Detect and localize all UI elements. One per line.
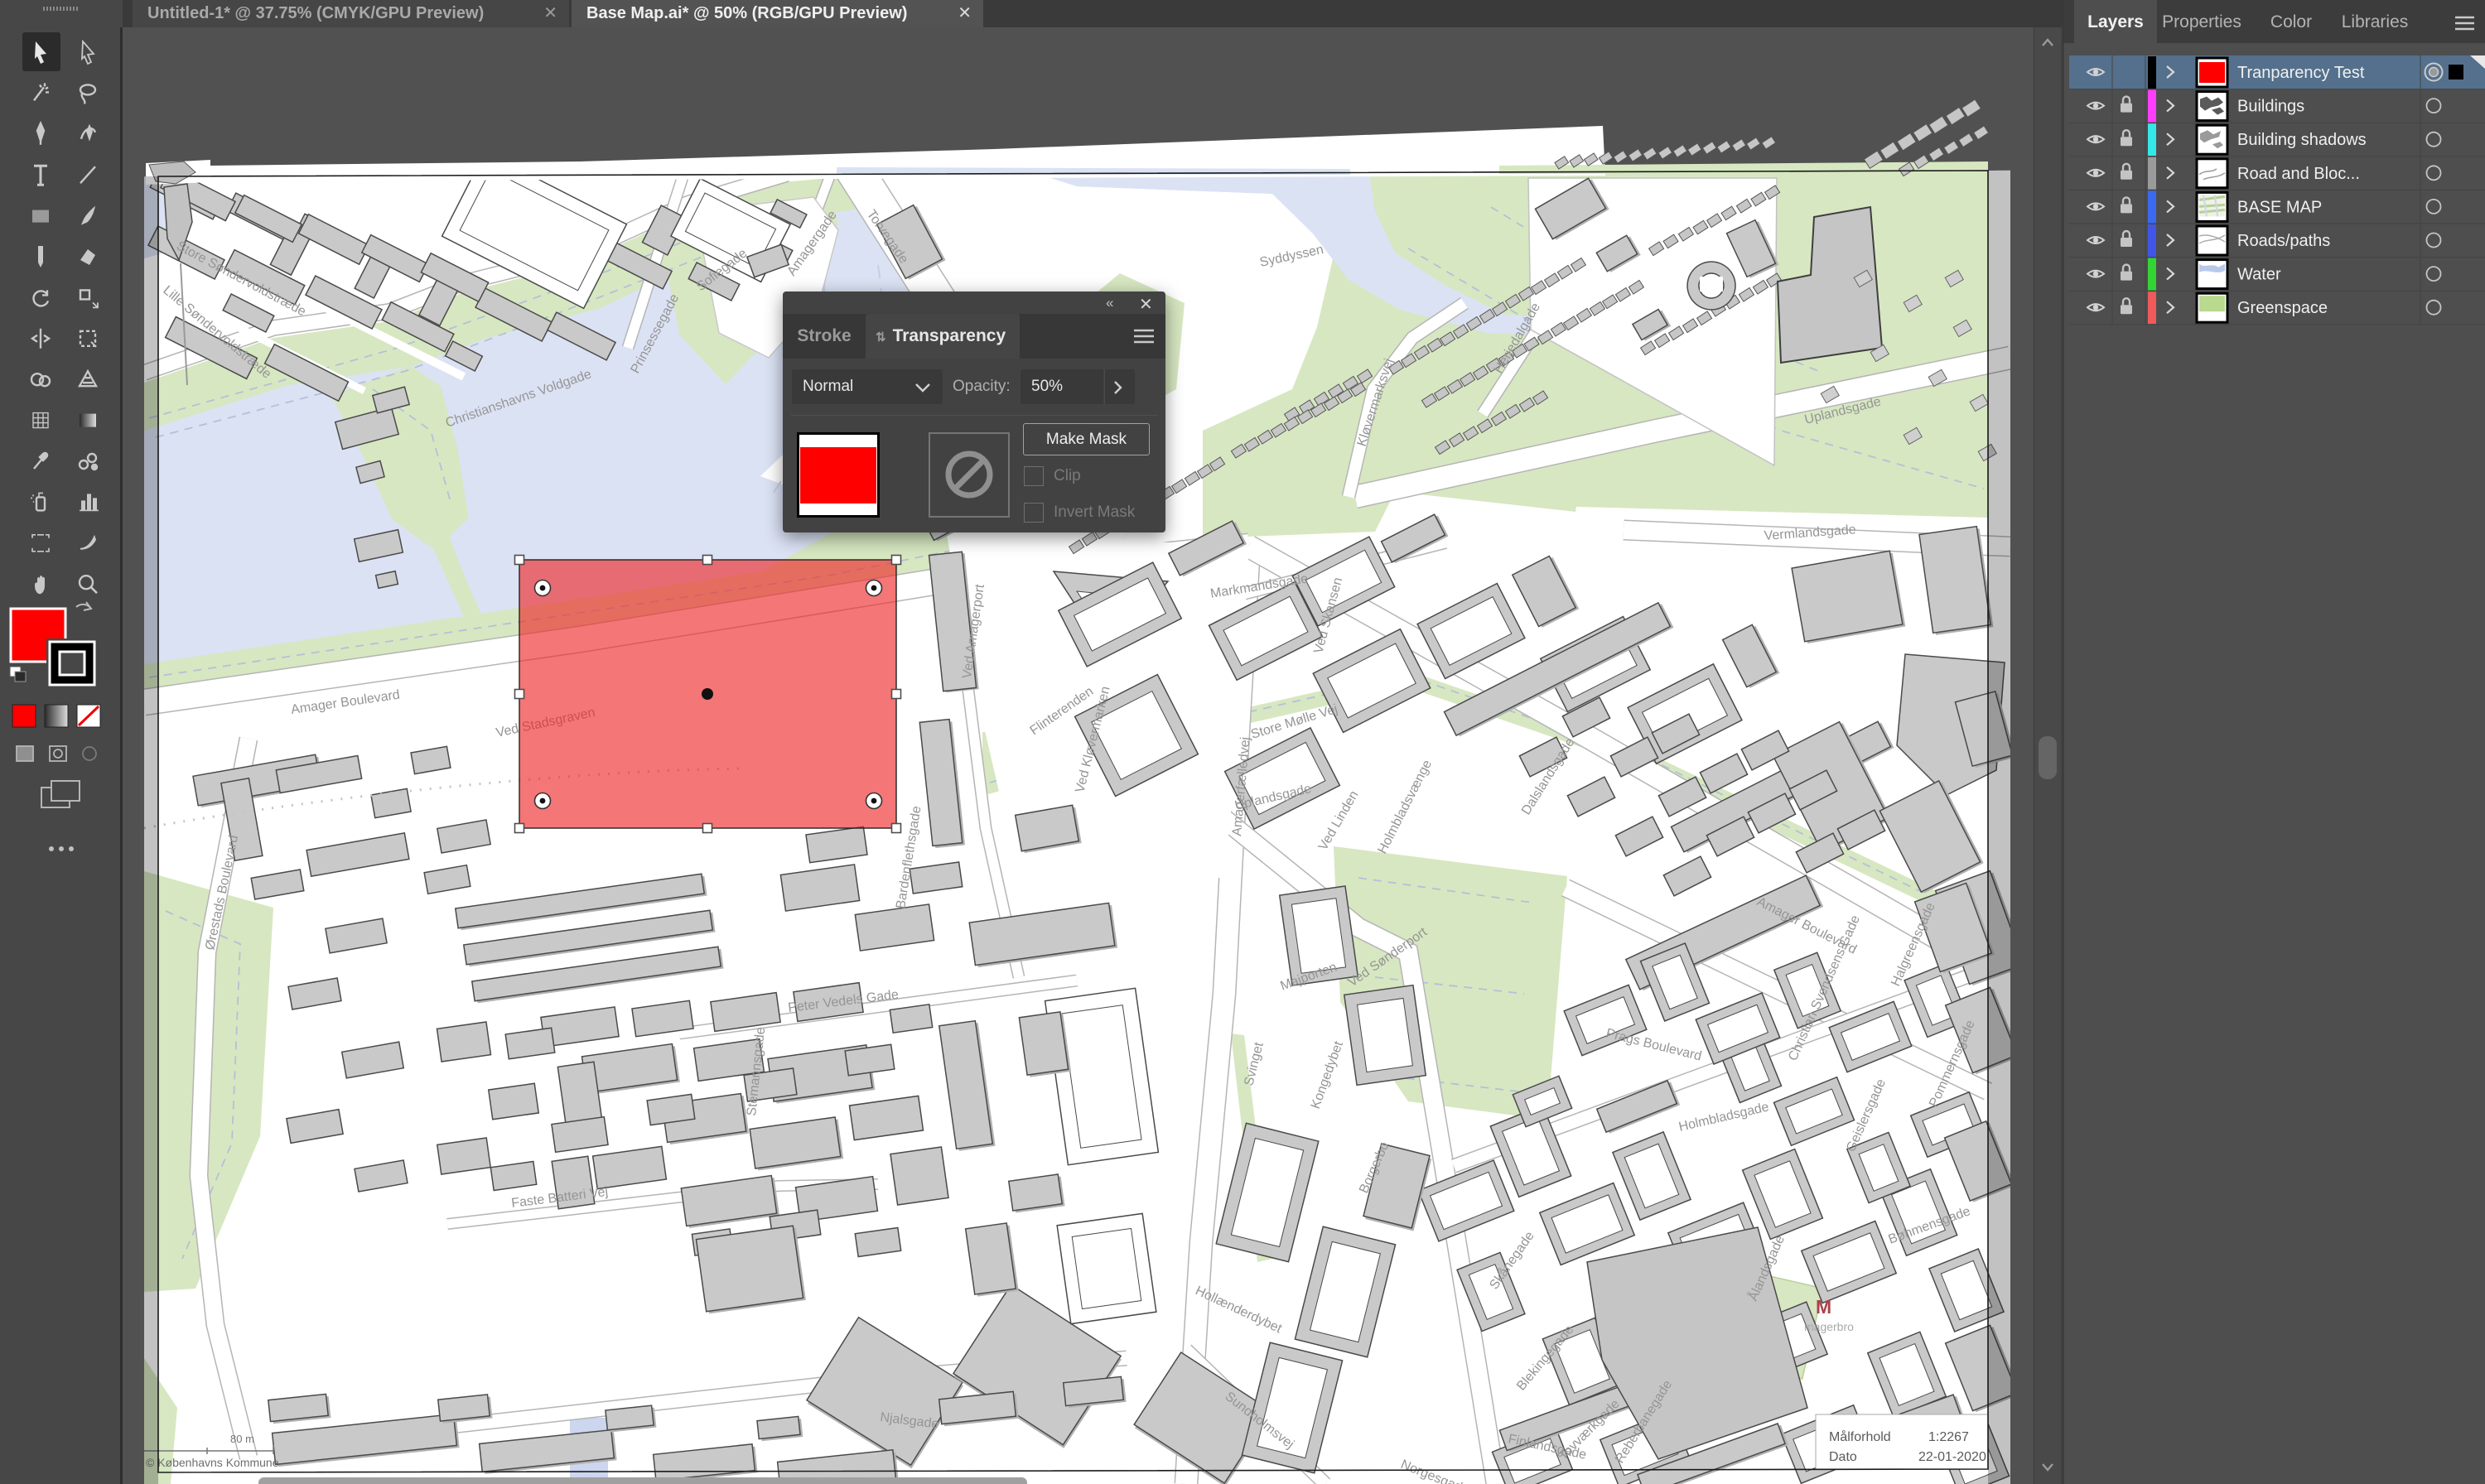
svg-text:BASE MAP: BASE MAP — [2237, 198, 2322, 216]
svg-text:Road and Bloc...: Road and Bloc... — [2237, 165, 2360, 183]
svg-text:© Københavns Kommune: © Københavns Kommune — [146, 1456, 279, 1469]
svg-text:Målforhold: Målforhold — [1829, 1429, 1891, 1444]
svg-text:magerbro: magerbro — [1804, 1320, 1854, 1333]
svg-text:Greenspace: Greenspace — [2237, 299, 2328, 317]
svg-text:Water: Water — [2237, 266, 2281, 284]
svg-text:22-01-2020: 22-01-2020 — [1918, 1450, 1986, 1464]
svg-text:80 m: 80 m — [230, 1433, 254, 1445]
svg-text:1:2267: 1:2267 — [1928, 1430, 1969, 1444]
svg-text:M: M — [1816, 1296, 1831, 1318]
svg-text:Buildings: Buildings — [2237, 98, 2304, 116]
svg-text:Roads/paths: Roads/paths — [2237, 232, 2330, 250]
svg-text:Properties: Properties — [2162, 12, 2241, 31]
svg-text:Color: Color — [2270, 12, 2312, 31]
svg-text:Dato: Dato — [1829, 1450, 1857, 1464]
svg-text:Libraries: Libraries — [2342, 12, 2409, 31]
svg-text:Building shadows: Building shadows — [2237, 131, 2367, 149]
svg-text:Layers: Layers — [2087, 12, 2144, 31]
svg-text:Tranparency Test: Tranparency Test — [2237, 64, 2365, 82]
